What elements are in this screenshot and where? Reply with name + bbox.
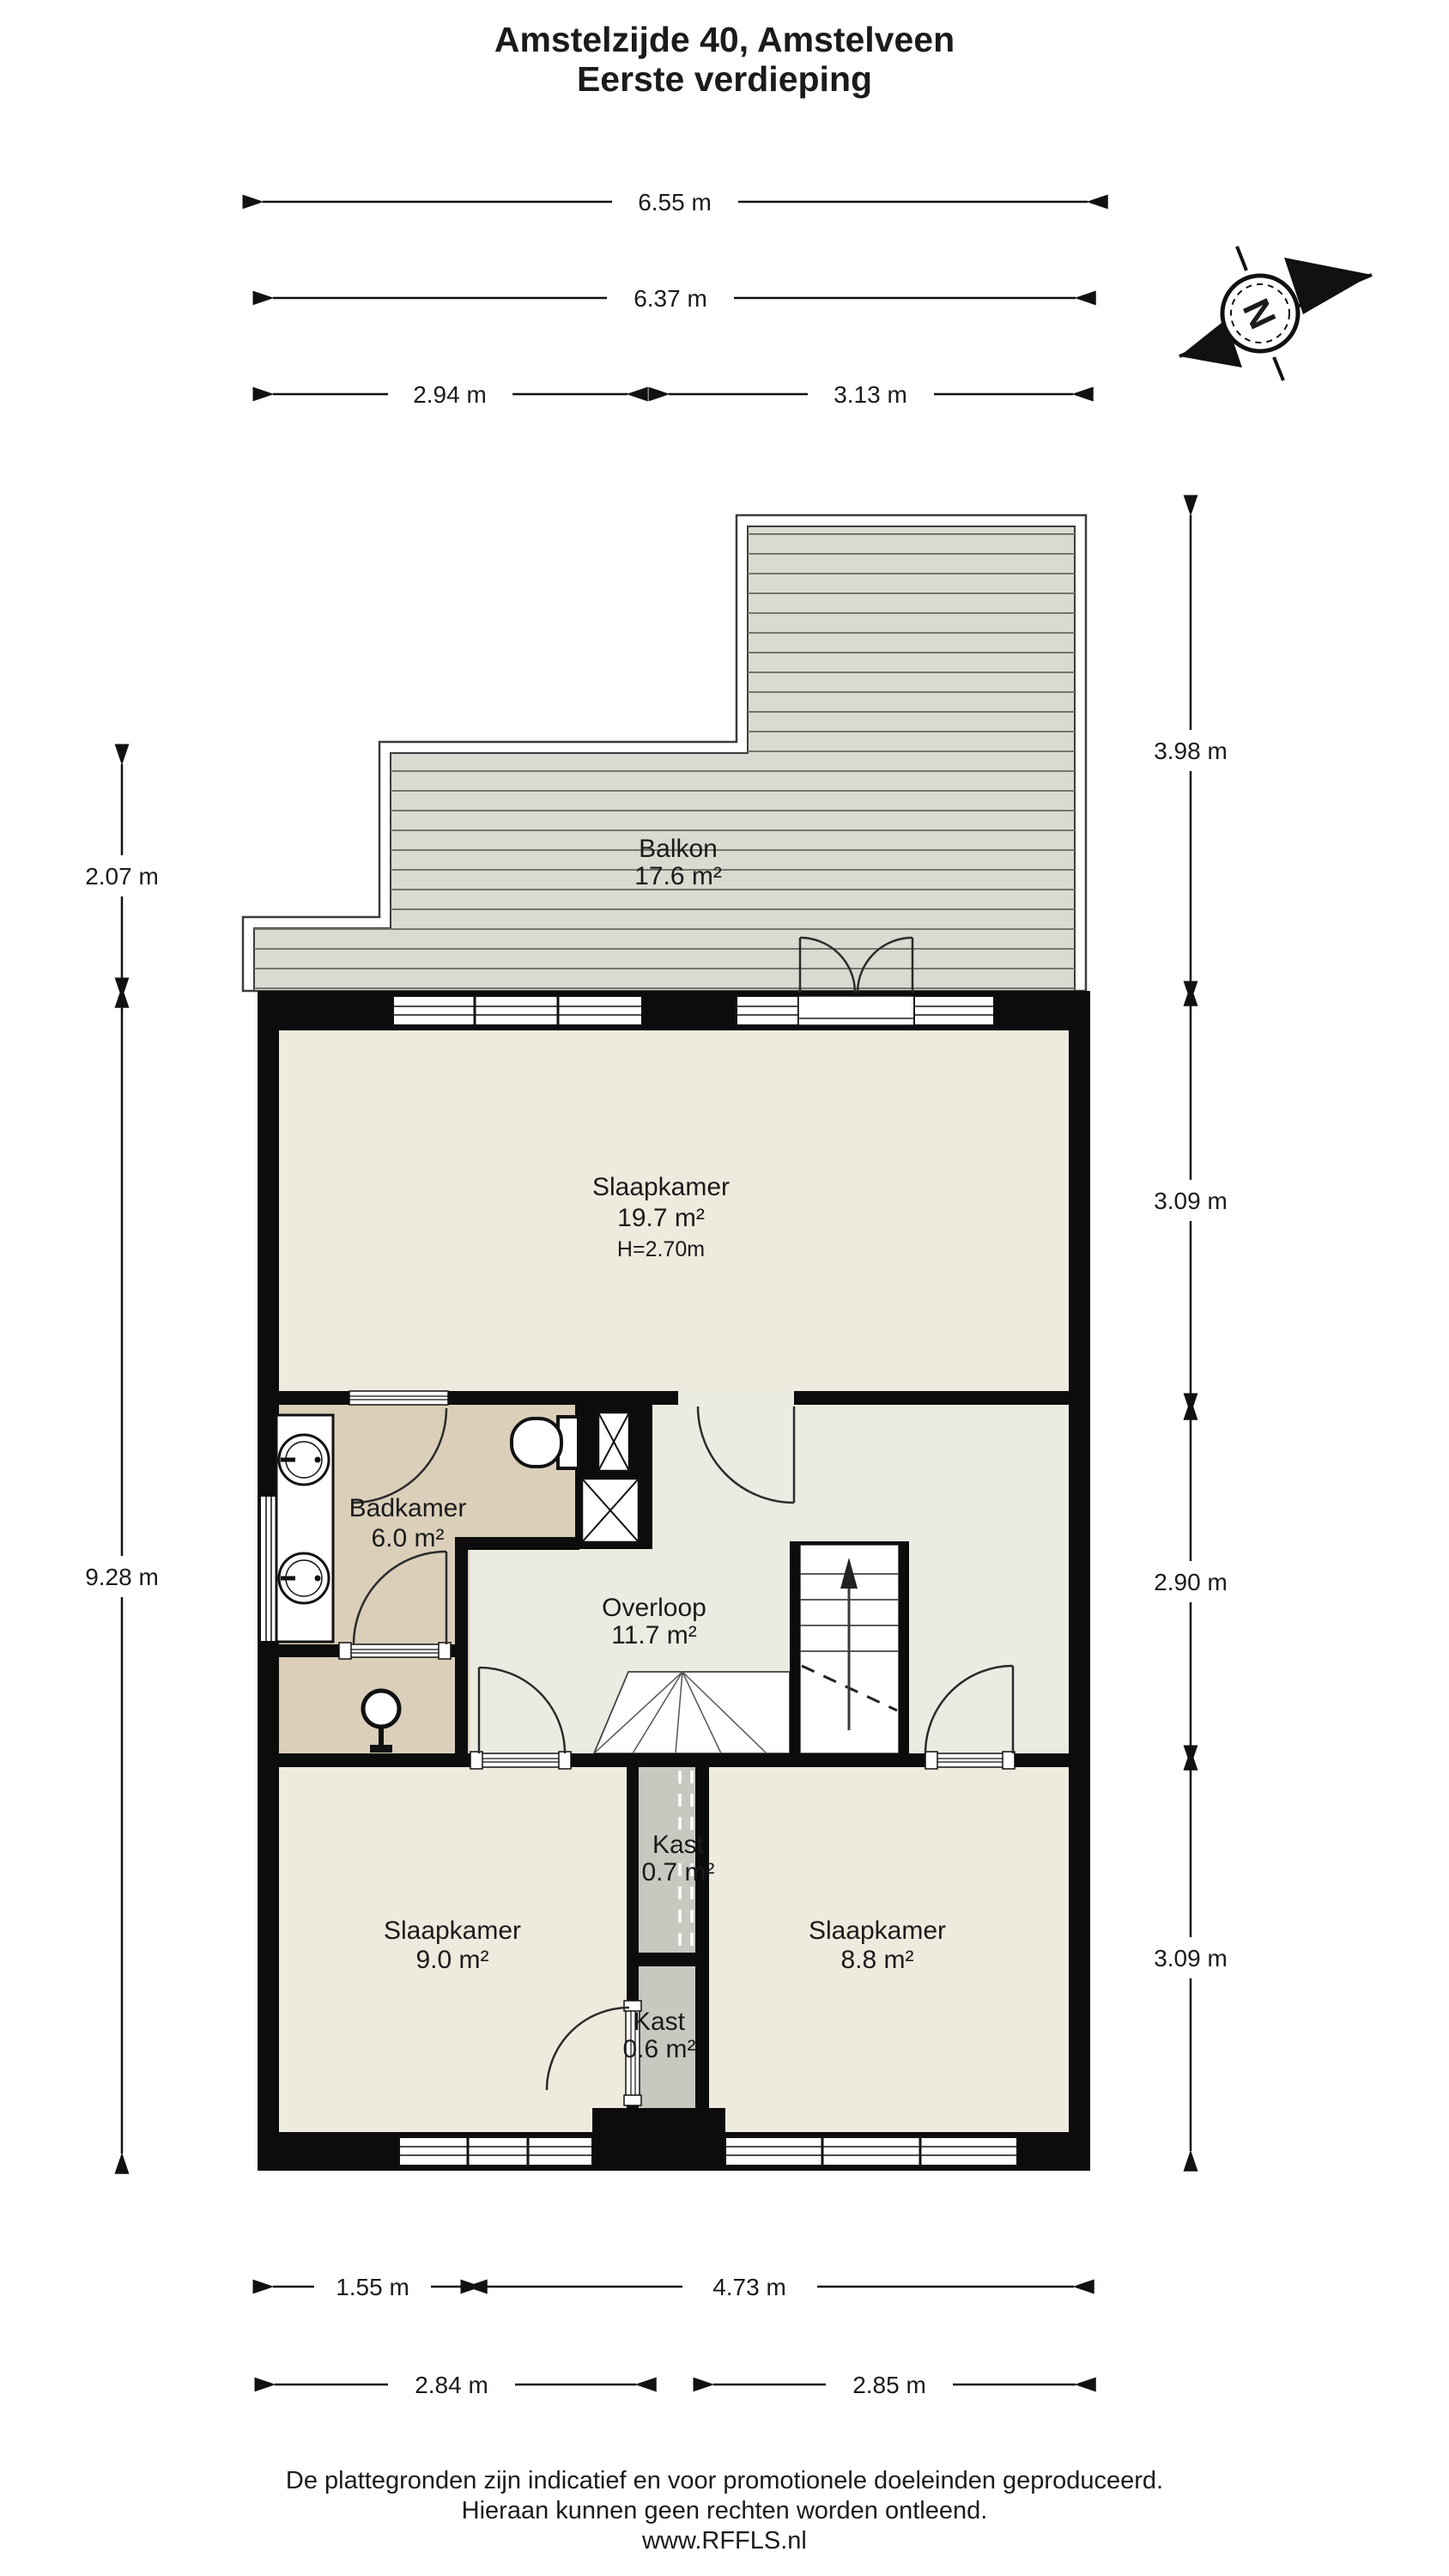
dim-label: 6.37 m: [634, 285, 707, 312]
stairs-winders: [594, 1672, 790, 1753]
window-north-2: [737, 996, 798, 1025]
wall-stairwell-west: [790, 1541, 800, 1753]
label-kast2-name: Kast: [634, 2008, 686, 2036]
wall-south-pier: [592, 2108, 725, 2171]
label-slaapkamer2-name: Slaapkamer: [384, 1917, 521, 1945]
dim-label: 3.98 m: [1154, 738, 1228, 764]
dim-top-313: 3.13 m: [669, 381, 1073, 408]
window-north-3: [914, 996, 994, 1025]
dim-label: 2.90 m: [1154, 1569, 1228, 1595]
dim-bottom-285: 2.85 m: [713, 2372, 1076, 2398]
door-threshold-annex: [339, 1643, 451, 1659]
dim-bottom-284: 2.84 m: [275, 2372, 636, 2398]
label-slaapkamer1-name: Slaapkamer: [592, 1173, 730, 1201]
dim-right-290: 2.90 m: [1154, 1413, 1228, 1750]
label-slaapkamer1-height: H=2.70m: [617, 1237, 705, 1261]
title-address: Amstelzijde 40, Amstelveen: [494, 20, 955, 59]
dim-label: 4.73 m: [712, 2274, 786, 2300]
label-kast1-name: Kast: [652, 1831, 705, 1859]
compass-north-icon: N: [1179, 246, 1372, 380]
label-kast1-area: 0.7 m²: [641, 1858, 714, 1886]
dim-left-928: 9.28 m: [85, 998, 159, 2154]
dim-label: 3.13 m: [834, 381, 907, 408]
dim-label: 2.07 m: [85, 863, 159, 890]
door-threshold-slaapkamer-88: [925, 1752, 1015, 1769]
footer-disclaimer: De plattegronden zijn indicatief en voor…: [286, 2467, 1163, 2555]
dim-bottom-155: 1.55 m: [273, 2274, 467, 2300]
window-west-badkamer: [260, 1496, 276, 1642]
label-slaapkamer2-area: 9.0 m²: [415, 1946, 488, 1974]
label-overloop-area: 11.7 m²: [611, 1621, 696, 1649]
label-slaapkamer3-area: 8.8 m²: [840, 1946, 913, 1974]
dim-right-309a: 3.09 m: [1154, 1001, 1228, 1400]
dim-label: 2.85 m: [852, 2372, 926, 2398]
page-title: Amstelzijde 40, Amstelveen Eerste verdie…: [494, 20, 955, 99]
dim-label: 2.84 m: [415, 2372, 488, 2398]
sink-icon: [279, 1553, 329, 1603]
shaft-duct-lower: [582, 1479, 639, 1542]
label-slaapkamer3-name: Slaapkamer: [809, 1917, 946, 1945]
shaft-duct-upper: [598, 1413, 629, 1471]
balcony-door-threshold: [798, 996, 914, 1025]
door-threshold-slaapkamer-9: [470, 1752, 571, 1769]
dim-right-398: 3.98 m: [1154, 515, 1228, 986]
wall-shaft-connector: [455, 1537, 579, 1550]
floorplan-canvas: Amstelzijde 40, Amstelveen Eerste verdie…: [0, 0, 1449, 2576]
dim-label: 2.94 m: [413, 381, 487, 408]
door-opening-overloop-entry: [678, 1391, 794, 1405]
wall-kast-divider: [627, 1953, 709, 1966]
label-kast2-area: 0.6 m²: [622, 2035, 695, 2063]
window-south-1: [399, 2137, 592, 2166]
dim-label: 3.09 m: [1154, 1945, 1228, 1971]
label-overloop-name: Overloop: [602, 1594, 706, 1622]
window-south-2: [725, 2137, 1017, 2166]
dim-label: 9.28 m: [85, 1564, 159, 1590]
dim-top-655: 6.55 m: [263, 189, 1088, 216]
dim-left-207: 2.07 m: [85, 764, 159, 987]
dim-top-294: 2.94 m: [273, 381, 627, 408]
floorplan-page: Amstelzijde 40, Amstelveen Eerste verdie…: [0, 0, 1449, 2576]
dim-label: 1.55 m: [336, 2274, 409, 2300]
sink-icon: [279, 1435, 329, 1485]
footer-line-3: www.RFFLS.nl: [641, 2527, 807, 2555]
toilet-icon: [512, 1417, 579, 1468]
door-threshold-badkamer-entry: [349, 1391, 448, 1405]
dim-label: 6.55 m: [638, 189, 712, 216]
footer-line-2: Hieraan kunnen geen rechten worden ontle…: [462, 2497, 988, 2524]
label-slaapkamer1-area: 19.7 m²: [617, 1204, 705, 1232]
title-floor: Eerste verdieping: [577, 59, 872, 99]
label-badkamer-name: Badkamer: [349, 1494, 467, 1522]
balcony: [243, 515, 1086, 991]
dim-top-637: 6.37 m: [273, 285, 1076, 312]
wall-kast-east: [695, 1767, 709, 2117]
dim-right-309b: 3.09 m: [1154, 1765, 1228, 2151]
dim-label: 3.09 m: [1154, 1188, 1228, 1214]
label-balkon-name: Balkon: [639, 835, 718, 863]
wall-stairwell-head: [790, 1541, 909, 1545]
wall-east: [1069, 991, 1090, 2171]
label-badkamer-area: 6.0 m²: [371, 1524, 444, 1552]
wall-stairwell-east: [899, 1541, 909, 1753]
label-balkon-area: 17.6 m²: [634, 862, 722, 890]
window-north-1: [393, 996, 642, 1025]
footer-line-1: De plattegronden zijn indicatief en voor…: [286, 2467, 1163, 2494]
dim-bottom-473: 4.73 m: [481, 2274, 1074, 2300]
